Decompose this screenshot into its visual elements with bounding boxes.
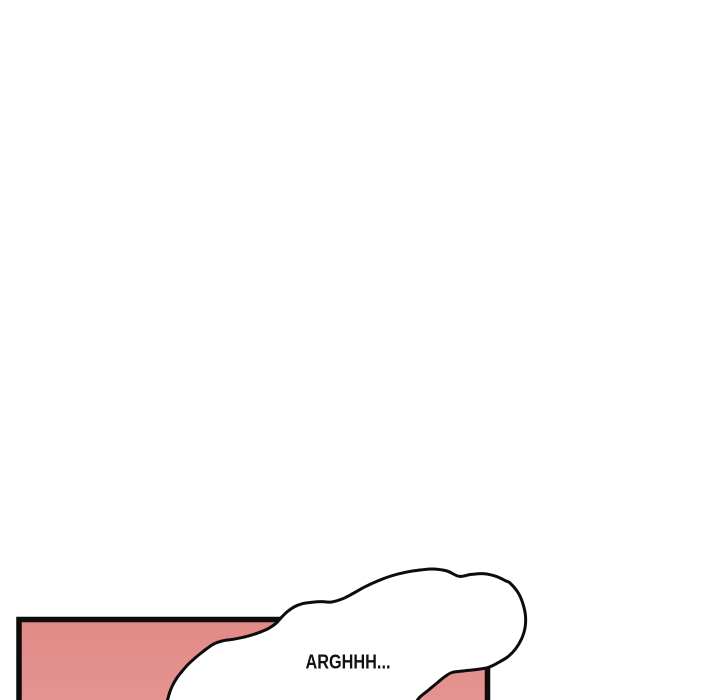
svg-text:ARGHHH...: ARGHHH...	[306, 651, 391, 674]
